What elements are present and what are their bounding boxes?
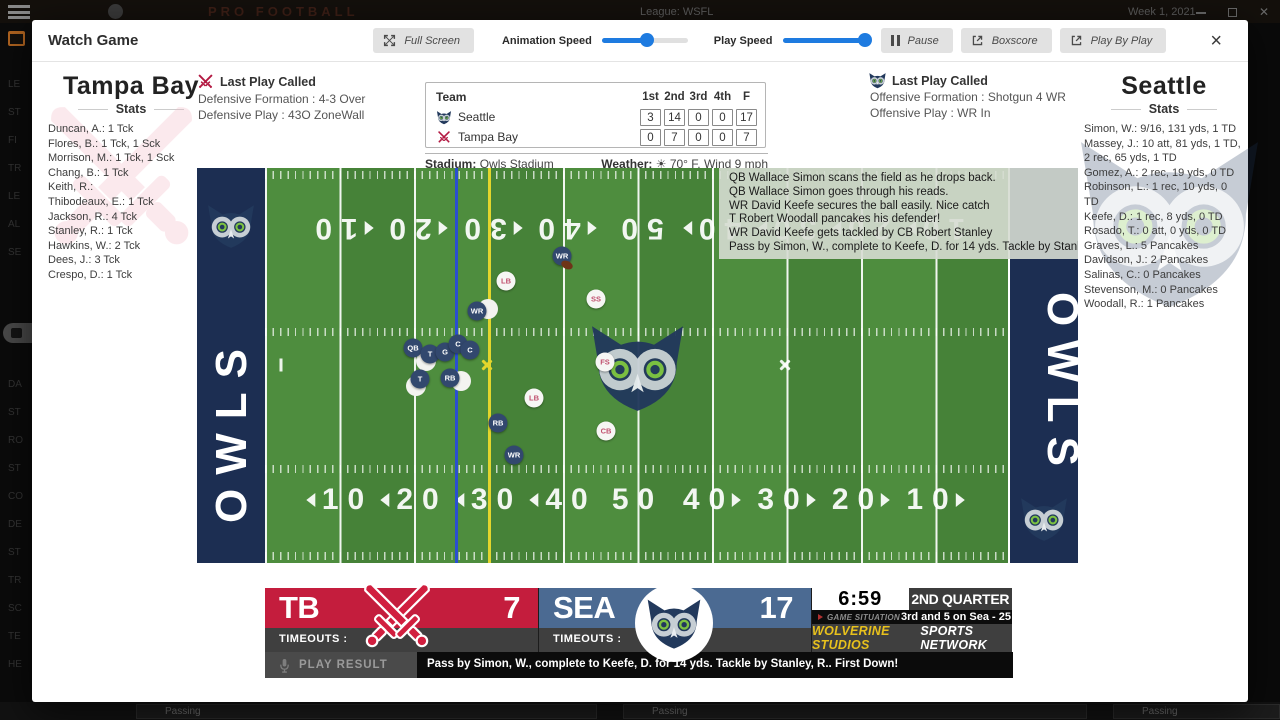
owl-icon: [868, 72, 887, 89]
yard-number: 40: [529, 483, 596, 517]
slider-thumb[interactable]: [858, 33, 872, 47]
animation-speed-label: Animation Speed: [502, 35, 592, 47]
play-result-text: Pass by Simon, W., complete to Keefe, D.…: [417, 652, 1013, 678]
home-last-play: Last Play Called Offensive Formation : S…: [868, 72, 1088, 121]
background-stats-strip: Passing Passing Passing: [0, 702, 1280, 720]
home-stats-list: Simon, W.: 9/16, 131 yds, 1 TDMassey, J.…: [1084, 122, 1244, 312]
scoreboard-row-seattle: Seattle 3 14 0 0 17: [436, 108, 757, 126]
away-stat-row: Thibodeaux, E.: 1 Tck: [48, 195, 220, 210]
modal-close-button[interactable]: ×: [1210, 31, 1222, 51]
score-cell: 3: [640, 109, 661, 126]
away-stats-header: Stats: [42, 102, 220, 116]
app-brand: PRO FOOTBALL: [208, 4, 359, 19]
passing-table-header: Passing: [623, 704, 1087, 719]
home-stat-row: Gomez, A.: 2 rec, 19 yds, 0 TD: [1084, 166, 1244, 181]
offensive-formation: Offensive Formation : Shotgun 4 WR: [870, 89, 1088, 105]
menu-icon[interactable]: [8, 5, 30, 19]
yard-number: 10: [906, 483, 964, 517]
home-score-section: SEA 17 TIMEOUTS :: [538, 588, 811, 652]
home-stat-row: Salinas, C.: 0 Pancakes: [1084, 268, 1244, 283]
play-result-label: PLAY RESULT: [299, 659, 388, 671]
score-cell: 0: [688, 129, 709, 146]
player-lb: LB: [497, 272, 516, 291]
away-stat-row: Flores, B.: 1 Tck, 1 Sck: [48, 137, 220, 152]
endzone-owl-logo: [1018, 495, 1070, 543]
x-yellow-marker: [481, 359, 494, 372]
sidebar-item[interactable]: FI: [0, 127, 32, 155]
animation-speed-slider[interactable]: [602, 38, 688, 43]
swords-icon: [196, 72, 215, 91]
commentary-line: T Robert Woodall pancakes his defender!: [729, 213, 1068, 227]
sidebar-item[interactable]: SC: [0, 595, 32, 623]
player-c: C: [461, 341, 480, 360]
away-last-play-title: Last Play Called: [220, 75, 316, 89]
swords-icon: [436, 129, 452, 145]
sidebar-item[interactable]: RO: [0, 427, 32, 455]
home-last-play-title: Last Play Called: [892, 74, 988, 88]
watch-game-modal: Watch Game Full Screen Animation Speed P…: [32, 20, 1248, 702]
home-stats-header: Stats: [1084, 102, 1244, 116]
sidebar-item[interactable]: LE: [0, 71, 32, 99]
game-info-section: 6:59 2ND QUARTER GAME SITUATION 3rd and …: [811, 588, 1012, 652]
commentary-line: WR David Keefe secures the ball easily. …: [729, 200, 1068, 214]
sidebar-item[interactable]: TR: [0, 567, 32, 595]
period-header: 2nd: [664, 91, 685, 103]
sidebar-item[interactable]: ST: [0, 399, 32, 427]
period-header: 1st: [640, 91, 661, 103]
away-stat-row: Stanley, R.: 1 Tck: [48, 224, 220, 239]
period-header: 4th: [712, 91, 733, 103]
away-stat-row: Crespo, D.: 1 Tck: [48, 268, 220, 283]
network-rest: SPORTS NETWORK: [920, 624, 1012, 652]
period-header: 3rd: [688, 91, 709, 103]
home-team-name: Seattle: [1084, 72, 1244, 101]
tampa-bay-logo: [353, 572, 441, 660]
sidebar-item[interactable]: AL: [0, 211, 32, 239]
home-stat-row: Graves, L.: 5 Pancakes: [1084, 239, 1244, 254]
away-stat-row: Dees, J.: 3 Tck: [48, 253, 220, 268]
away-team-panel: Tampa Bay Stats Duncan, A.: 1 TckFlores,…: [42, 72, 220, 283]
player-cb: CB: [597, 422, 616, 441]
yard-number: 40: [683, 483, 741, 517]
back-icon[interactable]: [108, 4, 123, 19]
owl-icon: [436, 110, 452, 125]
away-score-section: TB 7 TIMEOUTS :: [265, 588, 538, 652]
away-stat-row: Jackson, R.: 4 Tck: [48, 210, 220, 225]
broadcast-score-bar: TB 7 TIMEOUTS : SEA 17 TIMEOUTS :: [265, 588, 1013, 678]
sidebar-menu-top: LESTFITRLEALSE: [0, 71, 32, 267]
home-stat-row: Stevenson, M.: 0 Pancakes: [1084, 283, 1244, 298]
home-stat-row: Woodall, R.: 1 Pancakes: [1084, 297, 1244, 312]
away-abbr: TB: [279, 590, 319, 626]
fullscreen-icon: [383, 34, 396, 47]
away-last-play: Last Play Called Defensive Formation : 4…: [196, 72, 421, 123]
full-screen-button[interactable]: Full Screen: [373, 28, 474, 53]
modal-header: Watch Game Full Screen Animation Speed P…: [32, 20, 1248, 62]
play-by-play-button[interactable]: Play By Play: [1060, 28, 1167, 53]
microphone-icon: [277, 658, 292, 673]
sidebar-menu-bottom: DASTROSTCODESTTRSCTEHE: [0, 371, 32, 679]
endzone-text: OWLS: [1019, 256, 1078, 516]
home-stat-row: Simon, W.: 9/16, 131 yds, 1 TD: [1084, 122, 1244, 137]
player-ss: SS: [587, 290, 606, 309]
score-cell: 0: [688, 109, 709, 126]
player-rb: RB: [489, 414, 508, 433]
offensive-play: Offensive Play : WR In: [870, 105, 1088, 121]
yard-number: 50: [612, 483, 663, 517]
score-cell: 17: [736, 109, 757, 126]
home-stat-row: Massey, J.: 10 att, 81 yds, 1 TD, 2 rec,…: [1084, 137, 1244, 166]
away-stat-row: Duncan, A.: 1 Tck: [48, 122, 220, 137]
period-header: F: [736, 91, 757, 103]
play-speed-slider[interactable]: [783, 38, 869, 43]
away-stat-row: Morrison, M.: 1 Tck, 1 Sck: [48, 151, 220, 166]
defensive-play: Defensive Play : 43O ZoneWall: [198, 107, 421, 123]
away-stats-list: Duncan, A.: 1 TckFlores, B.: 1 Tck, 1 Sc…: [42, 122, 220, 283]
sidebar-item[interactable]: SE: [0, 239, 32, 267]
scoreboard: Team 1st 2nd 3rd 4th F Seattle 3 14 0 0 …: [425, 82, 766, 148]
play-speed-label: Play Speed: [714, 35, 773, 47]
sidebar-item[interactable]: DE: [0, 511, 32, 539]
situation-value: 3rd and 5 on Sea - 25: [900, 611, 1012, 623]
player-wr: WR: [505, 446, 524, 465]
situation-arrow-icon: [818, 614, 823, 620]
modal-title: Watch Game: [48, 32, 138, 49]
x-white-marker: [779, 359, 792, 372]
football-field: 102030405040302010 102030405040302010 OW…: [197, 168, 1078, 563]
yard-number: 20: [832, 483, 890, 517]
slider-fill: [783, 38, 866, 43]
home-stat-row: Rosado, T.: 0 att, 0 yds, 0 TD: [1084, 224, 1244, 239]
sidebar-item[interactable]: LE: [0, 183, 32, 211]
yard-number: 10: [306, 211, 373, 245]
slider-thumb[interactable]: [640, 33, 654, 47]
external-link-icon: [1070, 34, 1083, 47]
away-stat-row: Hawkins, W.: 2 Tck: [48, 239, 220, 254]
pause-icon: [891, 35, 900, 46]
game-clock: 6:59: [812, 588, 909, 610]
network-banner: WOLVERINE STUDIOS SPORTS NETWORK: [812, 624, 1012, 652]
pause-button[interactable]: Pause: [881, 28, 953, 53]
restore-icon[interactable]: [1228, 8, 1237, 17]
line-of-scrimmage: [455, 168, 458, 563]
quarter-label: 2ND QUARTER: [909, 588, 1012, 610]
sidebar-item[interactable]: TR: [0, 155, 32, 183]
commentary-line: Pass by Simon, W., complete to Keefe, D.…: [729, 241, 1068, 255]
minimize-icon[interactable]: [1196, 12, 1206, 14]
player-lb: LB: [525, 389, 544, 408]
score-cell: 7: [664, 129, 685, 146]
play-commentary-overlay: QB Wallace Simon scans the field as he d…: [719, 168, 1078, 259]
situation-label: GAME SITUATION: [827, 613, 900, 622]
passing-table-header: Passing: [136, 704, 597, 719]
away-stat-row: Chang, B.: 1 Tck: [48, 166, 220, 181]
commentary-line: WR David Keefe gets tackled by CB Robert…: [729, 227, 1068, 241]
scoreboard-team-header: Team: [436, 90, 466, 104]
home-stat-row: Keefe, D.: 1 rec, 8 yds, 0 TD: [1084, 210, 1244, 225]
home-score: 17: [760, 590, 793, 626]
away-team-name: Tampa Bay: [42, 72, 220, 101]
away-stat-row: Keith, R.:: [48, 180, 220, 195]
app-sidebar: LESTFITRLEALSE DASTROSTCODESTTRSCTEHE: [0, 23, 32, 720]
commentary-line: QB Wallace Simon scans the field as he d…: [729, 172, 1068, 186]
yard-number: 10: [306, 483, 373, 517]
league-label: League: WSFL: [640, 6, 713, 18]
commentary-line: QB Wallace Simon goes through his reads.: [729, 186, 1068, 200]
tick-marker: [280, 359, 283, 372]
home-stat-row: Robinson, L.: 1 rec, 10 yds, 0 TD: [1084, 180, 1244, 209]
scoreboard-row-tampa-bay: Tampa Bay 0 7 0 0 7: [436, 128, 757, 146]
player-fs: FS: [596, 353, 615, 372]
sidebar-item[interactable]: ST: [0, 539, 32, 567]
yard-number: 30: [757, 483, 815, 517]
yard-number: 20: [380, 483, 447, 517]
calendar-icon[interactable]: [8, 31, 25, 46]
player-wr: WR: [468, 302, 487, 321]
home-team-panel: Seattle Stats Simon, W.: 9/16, 131 yds, …: [1084, 72, 1244, 312]
window-close-icon[interactable]: ✕: [1259, 6, 1269, 18]
boxscore-button[interactable]: Boxscore: [961, 28, 1052, 53]
external-link-icon: [971, 34, 984, 47]
sidebar-item[interactable]: TE: [0, 623, 32, 651]
sidebar-active-item[interactable]: [3, 323, 32, 343]
yard-number: 20: [380, 211, 447, 245]
seattle-logo: [635, 584, 713, 662]
player-rb: RB: [441, 369, 460, 388]
score-cell: 14: [664, 109, 685, 126]
score-cell: 7: [736, 129, 757, 146]
score-cell: 0: [640, 129, 661, 146]
defensive-formation: Defensive Formation : 4-3 Over: [198, 91, 421, 107]
away-score: 7: [503, 590, 520, 626]
yard-number: 40: [529, 211, 596, 245]
passing-table-header: Passing: [1113, 704, 1280, 719]
endzone-text: OWLS: [207, 299, 275, 559]
sidebar-item[interactable]: CO: [0, 483, 32, 511]
sidebar-item[interactable]: ST: [0, 455, 32, 483]
sidebar-item[interactable]: DA: [0, 371, 32, 399]
score-cell: 0: [712, 109, 733, 126]
network-brand: WOLVERINE STUDIOS: [812, 624, 915, 652]
player-t: T: [411, 370, 430, 389]
yard-number: 50: [612, 211, 663, 245]
home-abbr: SEA: [553, 590, 615, 626]
sidebar-item[interactable]: HE: [0, 651, 32, 679]
sidebar-item[interactable]: ST: [0, 99, 32, 127]
game-situation-bar: GAME SITUATION 3rd and 5 on Sea - 25: [812, 610, 1012, 624]
score-cell: 0: [712, 129, 733, 146]
home-stat-row: Davidson, J.: 2 Pancakes: [1084, 253, 1244, 268]
week-label: Week 1, 2021: [1128, 6, 1196, 18]
